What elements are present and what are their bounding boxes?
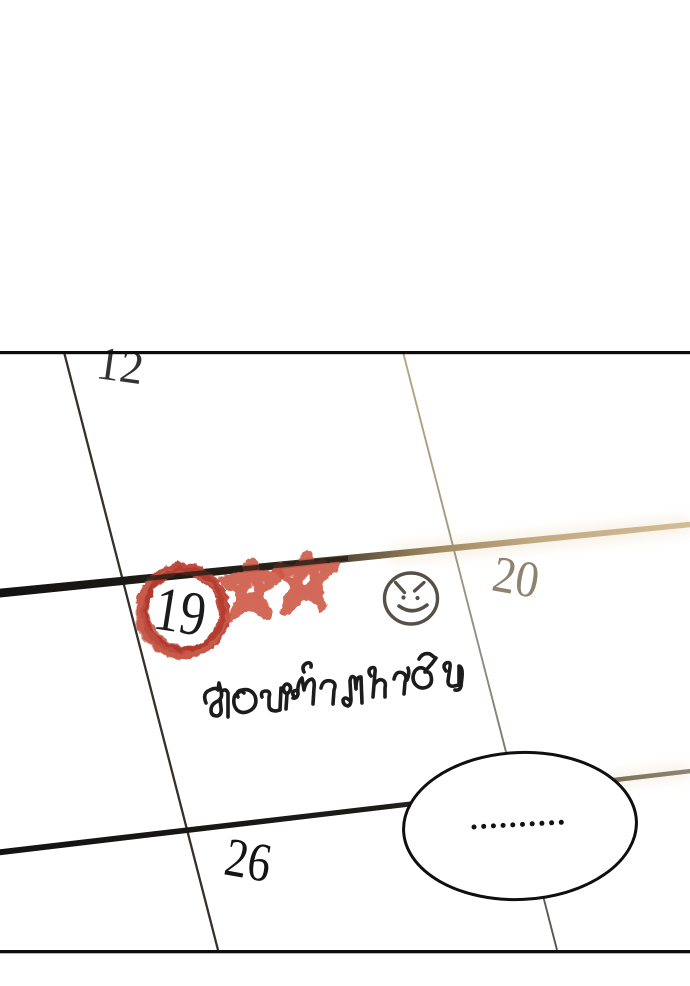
svg-text:12: 12 (93, 337, 147, 395)
